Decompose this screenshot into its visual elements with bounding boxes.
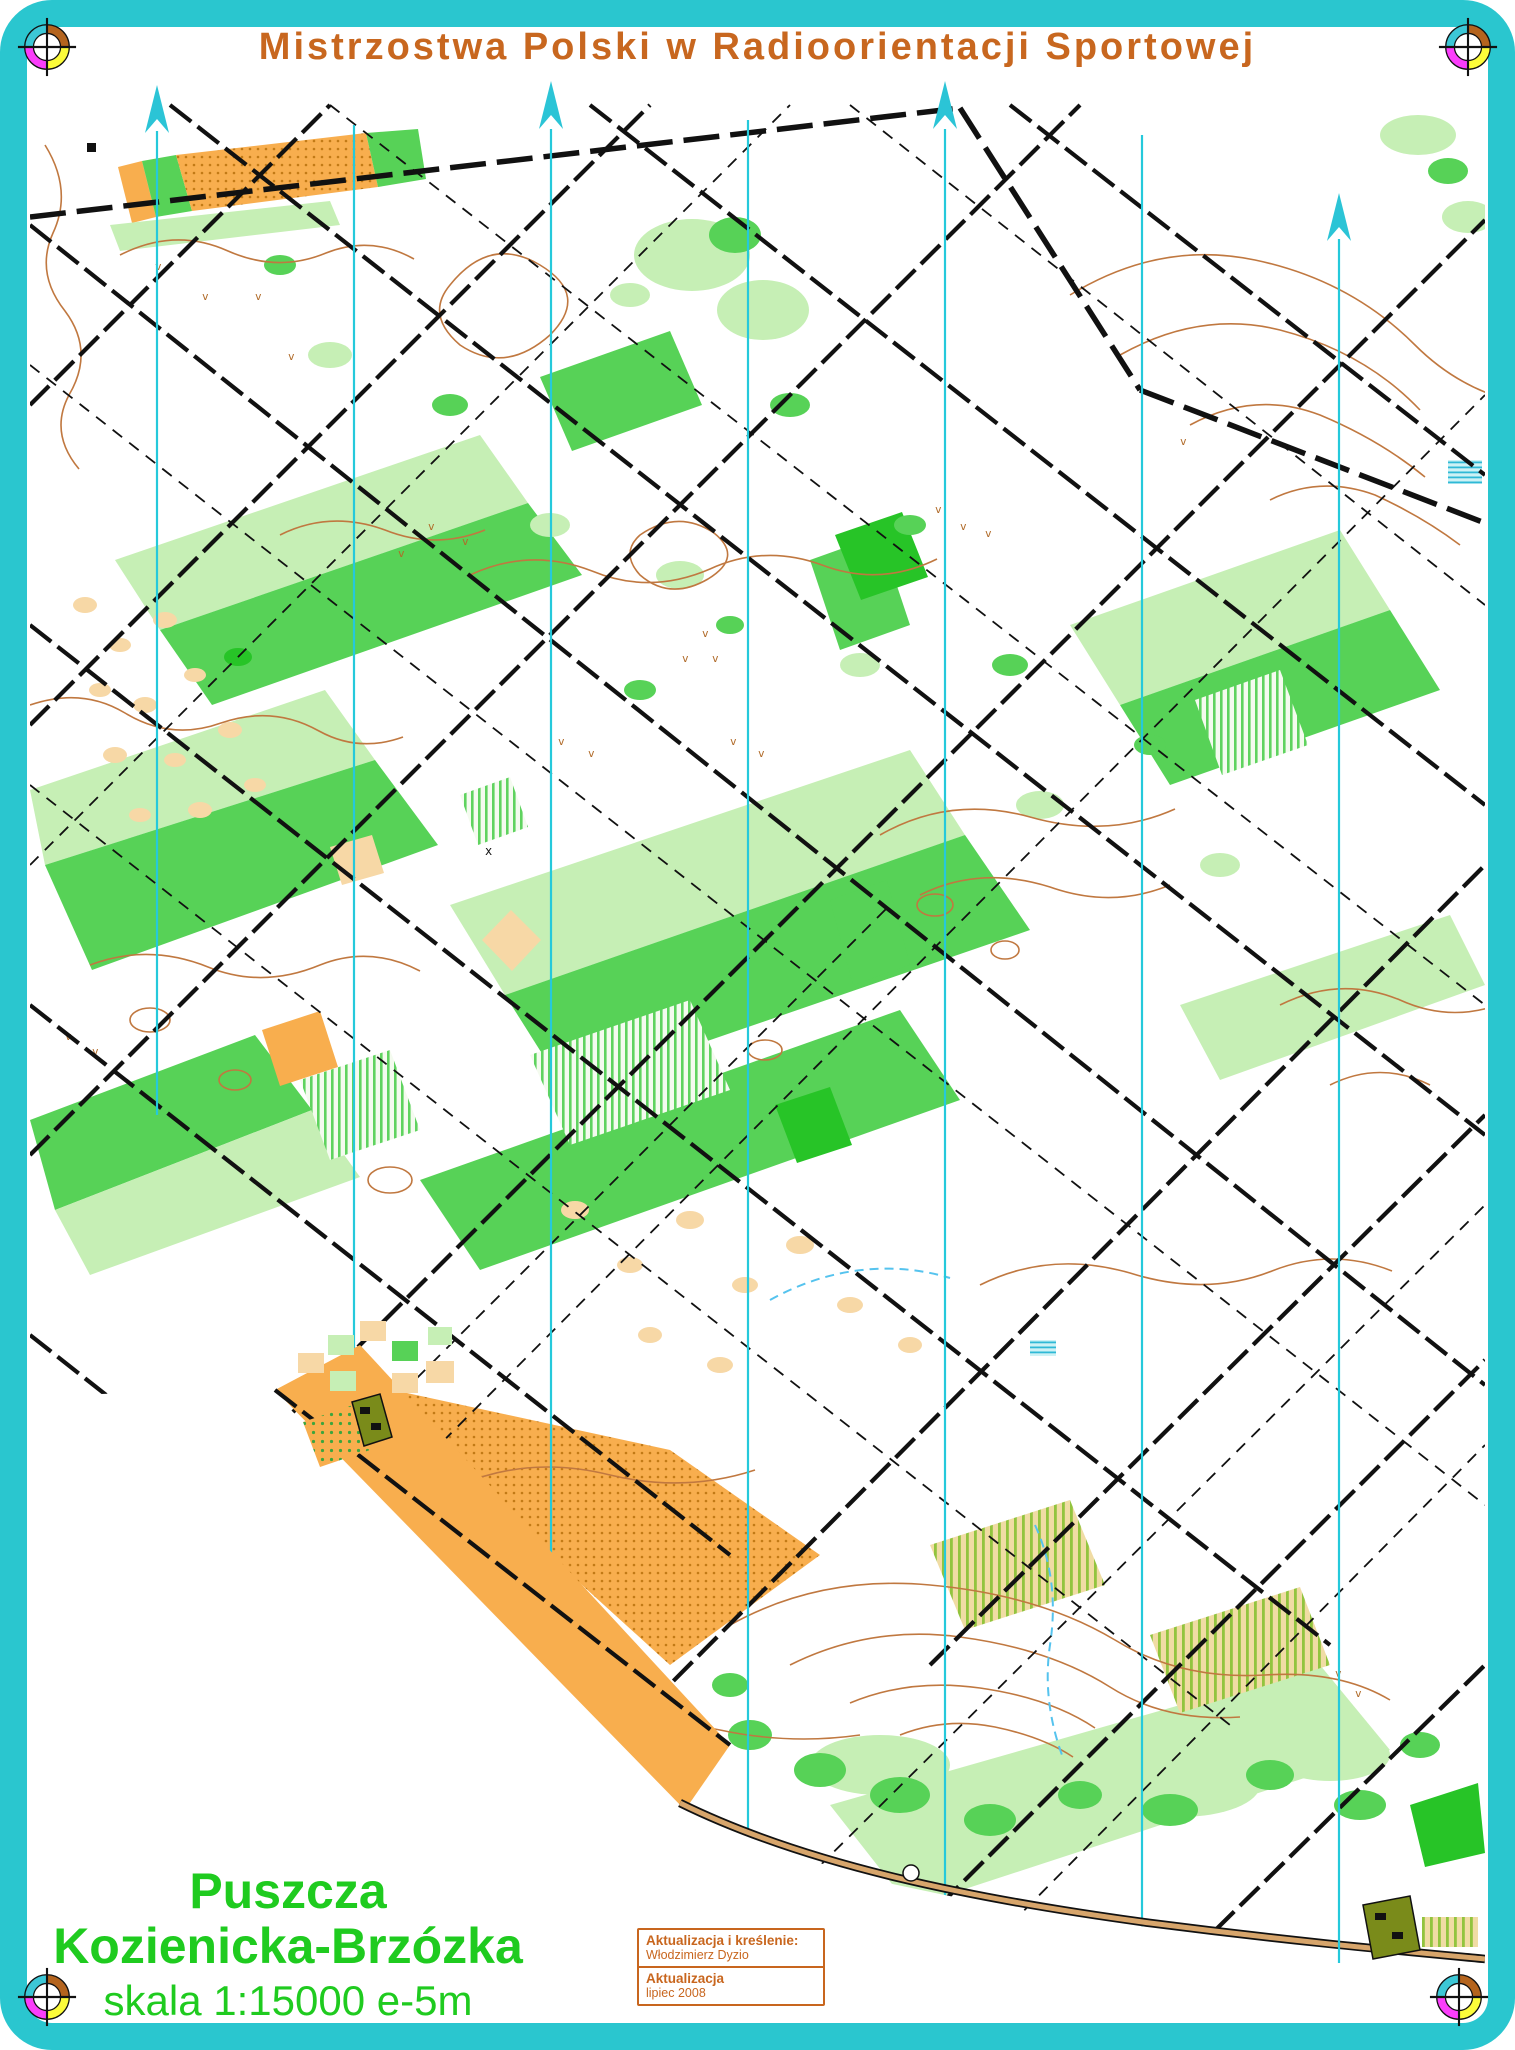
credits-row-update: Aktualizacja lipiec 2008 — [639, 1966, 823, 2004]
registration-mark-bottom-left-icon — [16, 1966, 78, 2028]
svg-text:v: v — [702, 627, 709, 640]
credits-label-2: Aktualizacja — [646, 1971, 816, 1986]
credits-box: Aktualizacja i kreślenie: Włodzimierz Dy… — [637, 1928, 825, 2006]
svg-text:v: v — [758, 747, 765, 760]
svg-text:v: v — [558, 735, 565, 748]
svg-text:v: v — [588, 747, 595, 760]
registration-mark-top-right-icon — [1437, 16, 1499, 78]
credits-label-1: Aktualizacja i kreślenie: — [646, 1933, 816, 1948]
credits-value-2: lipiec 2008 — [646, 1986, 816, 2000]
map-name-line1: Puszcza — [48, 1864, 528, 1919]
map-scale: skala 1:15000 e-5m — [48, 1978, 528, 2024]
svg-text:v: v — [960, 520, 967, 533]
svg-text:v: v — [985, 527, 992, 540]
svg-text:v: v — [1180, 435, 1187, 448]
svg-text:v: v — [1355, 1687, 1362, 1700]
svg-text:v: v — [398, 547, 405, 560]
map-canvas: vvvvvvvvvvvvvvvvvvvvvvx — [30, 75, 1485, 1965]
credits-row-drawing: Aktualizacja i kreślenie: Włodzimierz Dy… — [639, 1930, 823, 1966]
map-title-block: Puszcza Kozienicka-Brzózka skala 1:15000… — [48, 1864, 528, 2024]
map-sheet: Mistrzostwa Polski w Radioorientacji Spo… — [0, 0, 1515, 2050]
svg-text:v: v — [935, 503, 942, 516]
page-title: Mistrzostwa Polski w Radioorientacji Spo… — [0, 26, 1515, 69]
svg-text:v: v — [288, 350, 295, 363]
svg-text:v: v — [682, 652, 689, 665]
registration-mark-top-left-icon — [16, 16, 78, 78]
registration-mark-bottom-right-icon — [1428, 1966, 1490, 2028]
svg-text:v: v — [712, 652, 719, 665]
svg-text:v: v — [255, 290, 262, 303]
svg-text:v: v — [202, 290, 209, 303]
svg-text:x: x — [485, 844, 492, 858]
svg-text:v: v — [428, 520, 435, 533]
map-shapes: vvvvvvvvvvvvvvvvvvvvvvx — [30, 81, 1485, 1965]
svg-text:v: v — [730, 735, 737, 748]
credits-value-1: Włodzimierz Dyzio — [646, 1948, 816, 1962]
map-name-line2: Kozienicka-Brzózka — [48, 1919, 528, 1974]
svg-text:v: v — [462, 535, 469, 548]
